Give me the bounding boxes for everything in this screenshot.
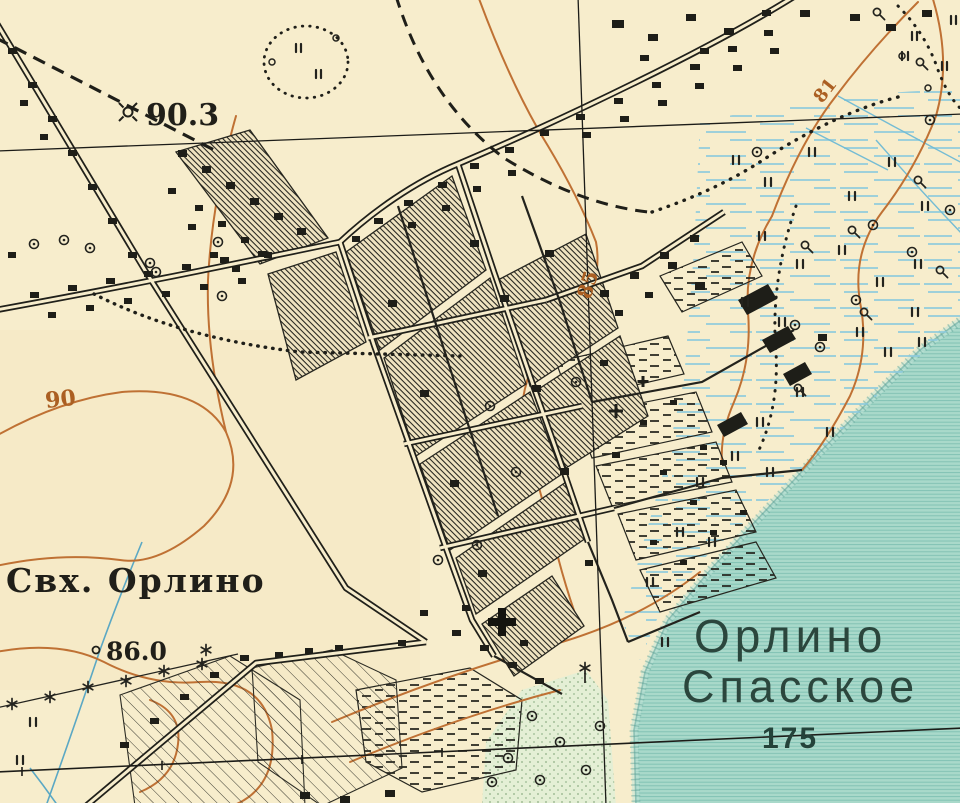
- label-farm: Свх. Орлино: [6, 561, 266, 600]
- label-lake-number: 175: [762, 722, 818, 755]
- label-spot-height-903: 90.3: [146, 98, 219, 133]
- topographic-map: Свх. Орлино Орлино Спасское 175 90.3 86.…: [0, 0, 960, 803]
- label-spot-height-860: 86.0: [106, 637, 167, 666]
- map-canvas: Свх. Орлино Орлино Спасское 175 90.3 86.…: [0, 0, 960, 803]
- label-contour-90: 90: [44, 385, 77, 414]
- label-lake-name-1: Орлино: [694, 610, 887, 662]
- paper-tint: [0, 330, 420, 690]
- label-lake-name-2: Спасское: [682, 661, 919, 712]
